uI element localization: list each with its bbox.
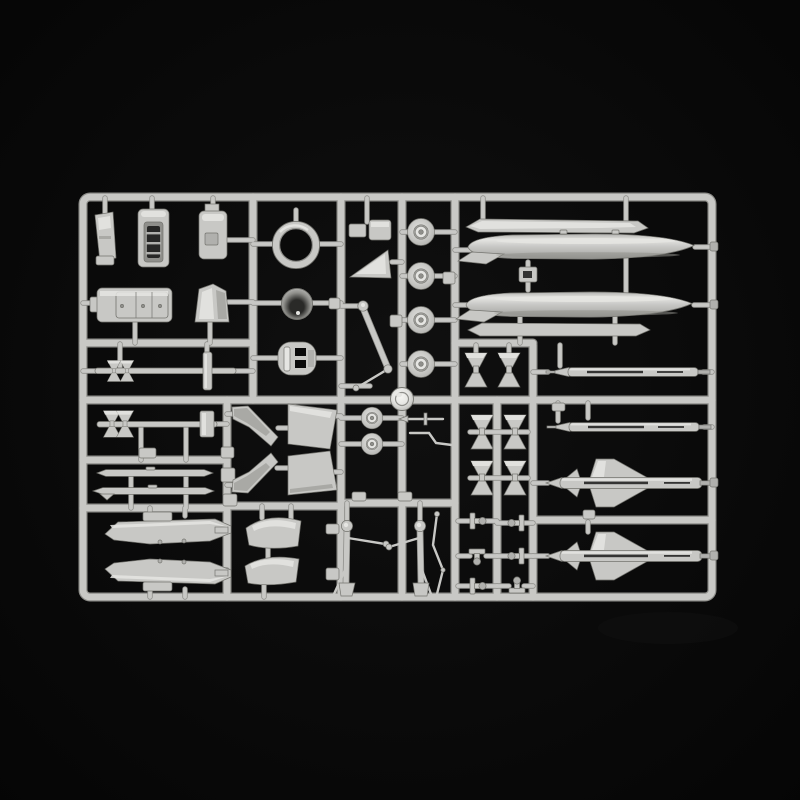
small-fitting-on-rail bbox=[443, 272, 455, 284]
sprue-photo bbox=[0, 0, 800, 800]
part-intake-ring bbox=[272, 221, 319, 268]
part-tank-strake-1 bbox=[466, 219, 648, 233]
part-windscreen-hood bbox=[195, 284, 229, 322]
part-pylon-bracket bbox=[519, 267, 537, 282]
part-slender-missile-2 bbox=[547, 422, 711, 431]
sprue-photo-canvas bbox=[0, 0, 800, 800]
part-headrest-console bbox=[199, 204, 227, 259]
part-mould-boss bbox=[391, 388, 414, 411]
part-nose-wheel bbox=[361, 407, 383, 429]
part-main-wheel bbox=[408, 351, 435, 378]
part-cockpit-tub bbox=[90, 288, 172, 322]
part-main-wheel bbox=[408, 307, 435, 334]
part-tank-strake-2 bbox=[468, 323, 650, 336]
part-nose-wheel bbox=[361, 433, 383, 455]
background-shadow-patch bbox=[598, 612, 738, 644]
part-main-wheel bbox=[408, 219, 435, 246]
part-main-wheel bbox=[408, 263, 435, 290]
part-slotted-bulkhead bbox=[278, 342, 316, 375]
part-ejection-seat bbox=[138, 209, 169, 267]
part-tailplane-panel-2 bbox=[288, 451, 337, 495]
part-slender-missile-1 bbox=[546, 367, 710, 376]
part-tailplane-panel-1 bbox=[288, 404, 337, 449]
part-seat-rail bbox=[95, 212, 116, 265]
